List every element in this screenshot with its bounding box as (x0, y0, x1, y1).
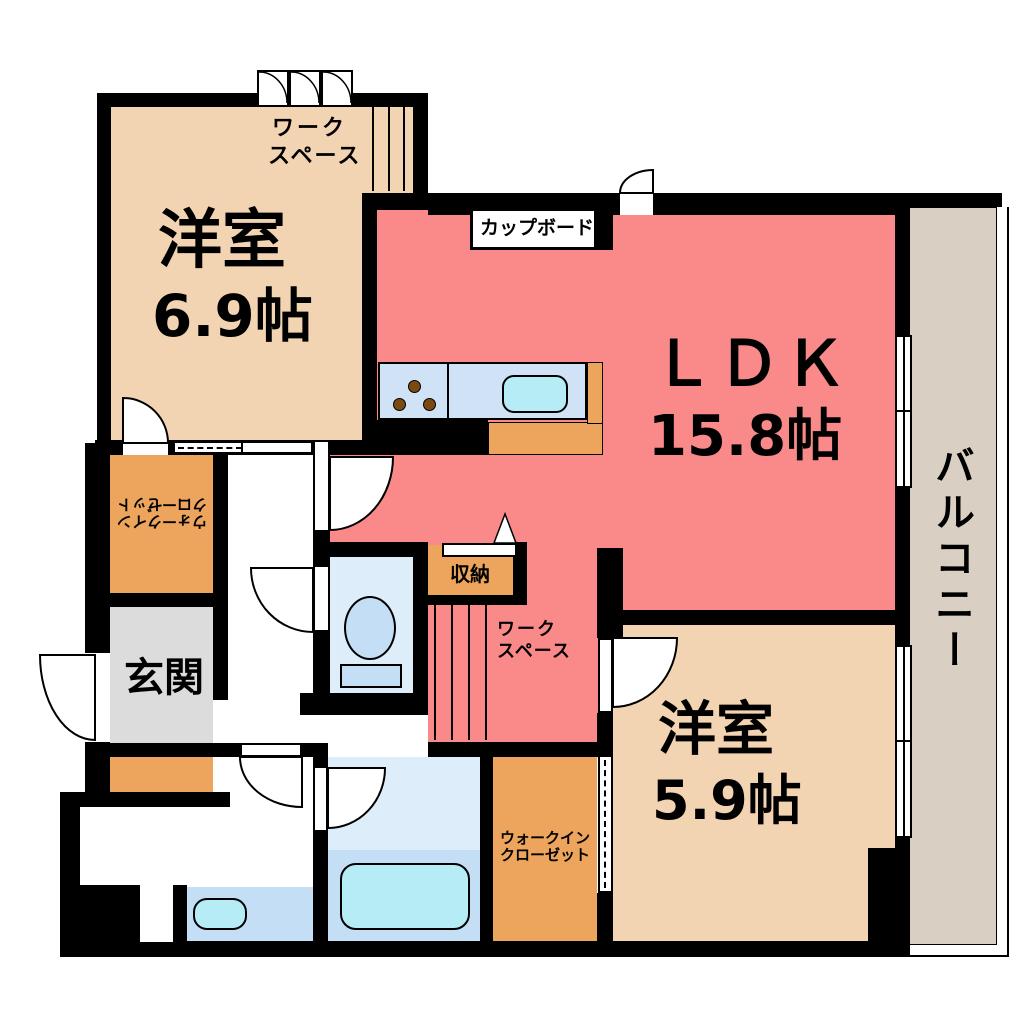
bedroom1-size: 6.9帖 (152, 283, 313, 350)
ldk-name: ＬＤＫ (652, 328, 850, 399)
awning-window-arc-1 (259, 72, 287, 103)
wic-left-line2: クローゼット (112, 495, 212, 512)
wic-bottom-label: ウォークイン クローゼット (495, 830, 595, 865)
workspace-top-line2: スペース (268, 144, 361, 169)
door-arc-bedroom1 (123, 398, 168, 443)
bedroom1-name: 洋室 (158, 205, 286, 279)
floorplan: 洋室 6.9帖 ワーク スペース カップボード ＬＤＫ 15.8帖 バルコニー … (0, 0, 1020, 1020)
door-arc-bathroom (328, 768, 385, 828)
bedroom2-name: 洋室 (658, 696, 774, 763)
door-arc-entrance (40, 655, 95, 740)
wic-left-label: ウォークイン クローゼット (112, 495, 212, 530)
awning-window-arc-3 (323, 72, 351, 103)
door-arc-toilet (251, 568, 313, 632)
wic-bottom-line1: ウォークイン (495, 830, 595, 847)
workspace-top-line1: ワーク (272, 116, 347, 141)
storage-label: 収納 (450, 563, 490, 586)
entrance-label: 玄関 (124, 655, 204, 701)
wic-left-line1: ウォークイン (112, 512, 212, 529)
workspace-mid-line2: スペース (497, 642, 571, 663)
workspace-mid-line1: ワーク (497, 620, 557, 641)
storage-pointer-triangle (494, 514, 516, 543)
door-arc-hall-ldk (330, 457, 393, 530)
balcony-label: バルコニー (928, 445, 974, 675)
door-arc-ldk-top (620, 170, 653, 193)
ldk-size: 15.8帖 (648, 405, 842, 469)
cupboard-label: カップボード (480, 218, 594, 240)
bedroom2-size: 5.9帖 (652, 770, 802, 832)
door-arc-washroom (240, 757, 302, 807)
wic-bottom-line2: クローゼット (495, 847, 595, 864)
awning-window-arc-2 (291, 72, 319, 103)
